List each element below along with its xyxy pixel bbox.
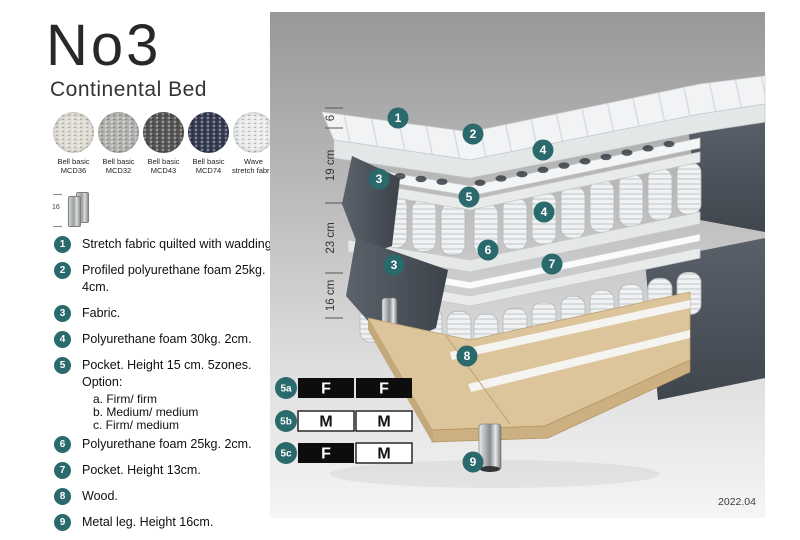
- firmness-value: M: [377, 414, 390, 431]
- callout-number: 7: [549, 257, 556, 271]
- profiled-foam-notch: [580, 158, 591, 164]
- callout-1: 1: [388, 108, 409, 129]
- spring-coil: [441, 203, 465, 255]
- firmness-row-label: 5c: [280, 449, 292, 460]
- profiled-foam-notch: [416, 176, 427, 182]
- profiled-foam-notch: [622, 149, 633, 155]
- profiled-foam-notch: [496, 175, 507, 181]
- callout-number: 4: [541, 205, 548, 219]
- leg-foot: [480, 466, 500, 472]
- spring-coil: [561, 186, 585, 238]
- profiled-foam-notch: [517, 171, 528, 177]
- profiled-foam-notch: [475, 180, 486, 186]
- firmness-value: F: [379, 381, 389, 398]
- callout-number: 4: [540, 143, 547, 157]
- profiled-foam-notch: [559, 162, 570, 168]
- profiled-foam-notch: [664, 141, 675, 147]
- callout-2: 2: [463, 124, 484, 145]
- firmness-value: M: [319, 414, 332, 431]
- callout-number: 6: [485, 243, 492, 257]
- firmness-value: M: [377, 446, 390, 463]
- callout-number: 1: [395, 111, 402, 125]
- callout-number: 3: [376, 172, 383, 186]
- firmness-value: F: [321, 381, 331, 398]
- callout-5: 5: [459, 187, 480, 208]
- spring-coil: [412, 200, 436, 252]
- spring-coil: [590, 180, 614, 232]
- callout-8: 8: [457, 346, 478, 367]
- callout-number: 2: [470, 127, 477, 141]
- firmness-value: F: [321, 446, 331, 463]
- dim-label-leg: 16 cm: [325, 280, 337, 311]
- dim-label-base: 23 cm: [325, 222, 337, 253]
- spring-coil: [648, 168, 672, 220]
- dim-label-mattress: 19 cm: [325, 150, 337, 181]
- callout-number: 5: [466, 190, 473, 204]
- callout-3-upper: 3: [369, 169, 390, 190]
- callout-6: 6: [478, 240, 499, 261]
- firmness-table: 5a F F 5b M M 5c F M: [275, 377, 412, 464]
- profiled-foam-notch: [538, 167, 549, 173]
- version-label: 2022.04: [718, 496, 756, 508]
- callout-7: 7: [542, 254, 563, 275]
- firmness-row-label: 5b: [280, 417, 292, 428]
- firmness-row-label: 5a: [280, 384, 292, 395]
- callout-number: 9: [470, 455, 477, 469]
- product-sheet: No3 Continental Bed Bell basicMCD36 Bell…: [0, 0, 800, 533]
- callout-9: 9: [463, 452, 484, 473]
- callout-4-upper: 4: [533, 140, 554, 161]
- callout-number: 3: [391, 258, 398, 272]
- profiled-foam-notch: [601, 154, 612, 160]
- callout-4-lower: 4: [534, 202, 555, 223]
- bed-cutaway-diagram: 6 19 cm 23 cm 16 cm 1 2 4 3 5 4: [0, 0, 800, 533]
- spring-coil: [677, 162, 701, 214]
- dim-label-topper: 6: [325, 115, 337, 121]
- callout-number: 8: [464, 349, 471, 363]
- spring-coil: [619, 174, 643, 226]
- spring-coil: [503, 198, 527, 250]
- profiled-foam-notch: [643, 145, 654, 151]
- profiled-foam-notch: [437, 179, 448, 185]
- callout-3-lower: 3: [384, 255, 405, 276]
